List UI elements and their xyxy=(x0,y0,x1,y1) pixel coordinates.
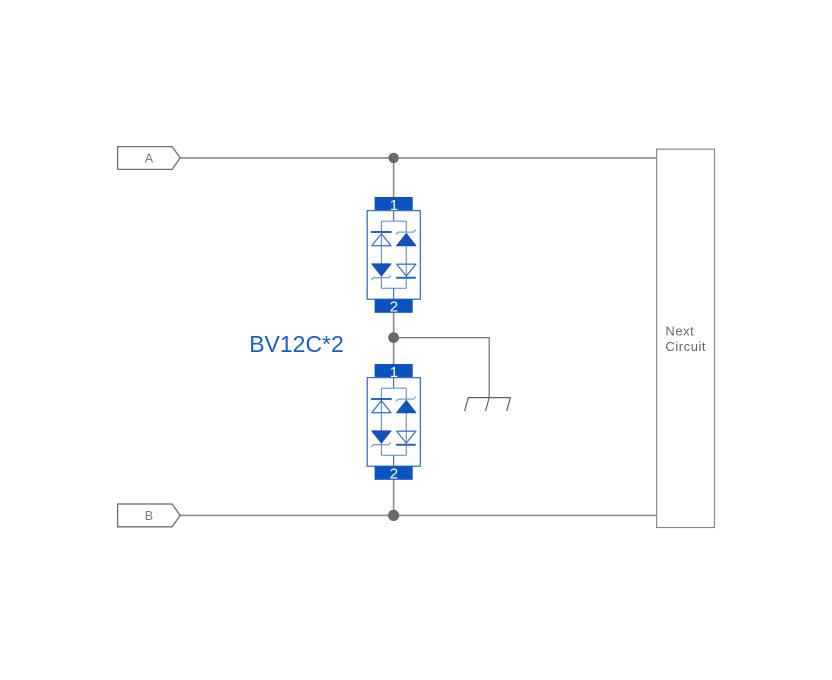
svg-text:2: 2 xyxy=(390,466,398,483)
svg-text:2: 2 xyxy=(390,299,398,316)
svg-text:A: A xyxy=(145,151,154,165)
svg-text:BV12C*2: BV12C*2 xyxy=(249,331,344,357)
svg-text:Circuit: Circuit xyxy=(665,339,706,354)
svg-text:Next: Next xyxy=(665,324,694,339)
svg-text:B: B xyxy=(145,509,153,523)
